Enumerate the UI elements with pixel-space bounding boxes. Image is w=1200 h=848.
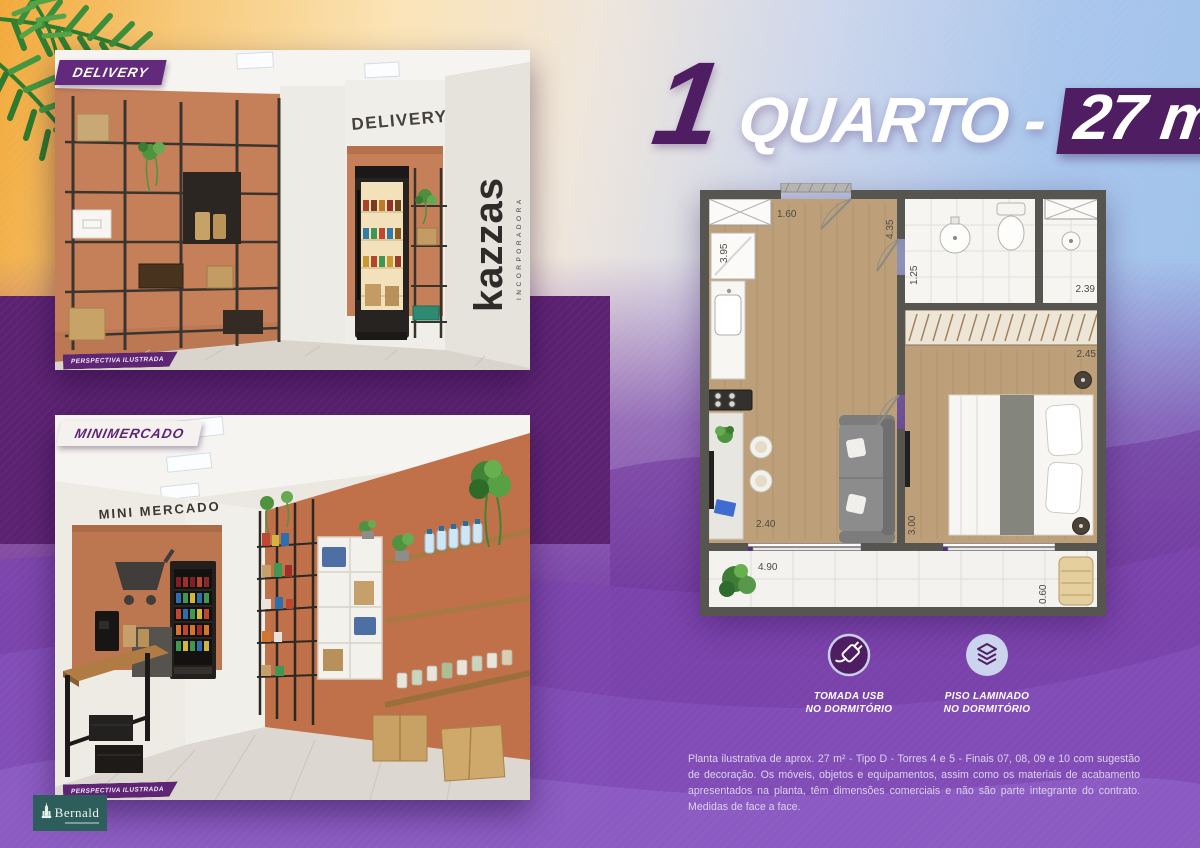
floor-plan: 1.60 4.35 3.95 1.25 2.39 2.45 2.40 3.00 … xyxy=(693,183,1113,619)
title-area-box: 27 m 2 xyxy=(1056,88,1200,154)
feature-laminate: PISO LAMINADO NO DORMITÓRIO xyxy=(931,632,1043,716)
feature-usb-label: TOMADA USB NO DORMITÓRIO xyxy=(793,690,905,716)
feature-usb: TOMADA USB NO DORMITÓRIO xyxy=(793,632,905,716)
brochure-page: DELIVERY xyxy=(0,0,1200,848)
balcony-chair xyxy=(1059,557,1093,605)
wardrobe xyxy=(905,310,1099,345)
white-pillar xyxy=(280,86,345,348)
feature-list: TOMADA USB NO DORMITÓRIO PISO LAMINADO N… xyxy=(793,632,1043,716)
delivery-tag: DELIVERY xyxy=(54,60,167,85)
dim-label: 2.45 xyxy=(1077,349,1097,360)
dim-label: 1.25 xyxy=(909,265,920,285)
entrance-mat xyxy=(781,183,851,192)
page-title: 1 QUARTO - 27 m 2 xyxy=(655,56,1200,154)
bed xyxy=(949,395,1093,535)
minimercado-render: MINI MERCADO xyxy=(55,415,530,800)
photo-delivery: DELIVERY xyxy=(55,50,530,370)
laminate-floor-icon xyxy=(964,632,1010,683)
dim-label: 2.39 xyxy=(1076,284,1096,295)
logo-name: Bernald xyxy=(55,805,100,821)
living-tv xyxy=(709,451,714,509)
dim-label: 3.95 xyxy=(719,243,730,263)
usb-plug-icon xyxy=(826,632,872,683)
logo-tagline-illegible xyxy=(65,822,99,824)
perspective-caption: PERSPECTIVA ILUSTRADA xyxy=(63,351,178,369)
title-number: 1 xyxy=(648,56,727,153)
bernald-logo: Bernald xyxy=(33,795,107,831)
building-icon xyxy=(41,803,52,824)
minimercado-tag: MINIMERCADO xyxy=(56,421,203,446)
dim-label: 0.60 xyxy=(1038,584,1049,604)
dim-label: 4.35 xyxy=(885,219,896,239)
title-label: QUARTO - xyxy=(736,92,1048,150)
title-area: 27 m xyxy=(1070,81,1200,153)
photo-minimercado: MINI MERCADO xyxy=(55,415,530,800)
dim-label: 1.60 xyxy=(777,209,797,220)
dim-label: 4.90 xyxy=(758,562,778,573)
sofa xyxy=(839,415,895,543)
legal-disclaimer: Planta ilustrativa de aprox. 27 m² - Tip… xyxy=(688,752,1140,816)
dim-label: 2.40 xyxy=(756,519,776,530)
drink-fridge xyxy=(170,561,216,679)
bedroom-tv xyxy=(905,431,910,487)
dim-label: 3.00 xyxy=(907,515,918,535)
delivery-render: DELIVERY xyxy=(55,50,530,370)
svg-text:kazzas: kazzas xyxy=(467,177,511,312)
beverage-fridge xyxy=(355,166,409,340)
white-cube-shelf xyxy=(318,537,382,679)
svg-text:INCORPORADORA: INCORPORADORA xyxy=(516,196,523,300)
feature-laminate-label: PISO LAMINADO NO DORMITÓRIO xyxy=(931,690,1043,716)
